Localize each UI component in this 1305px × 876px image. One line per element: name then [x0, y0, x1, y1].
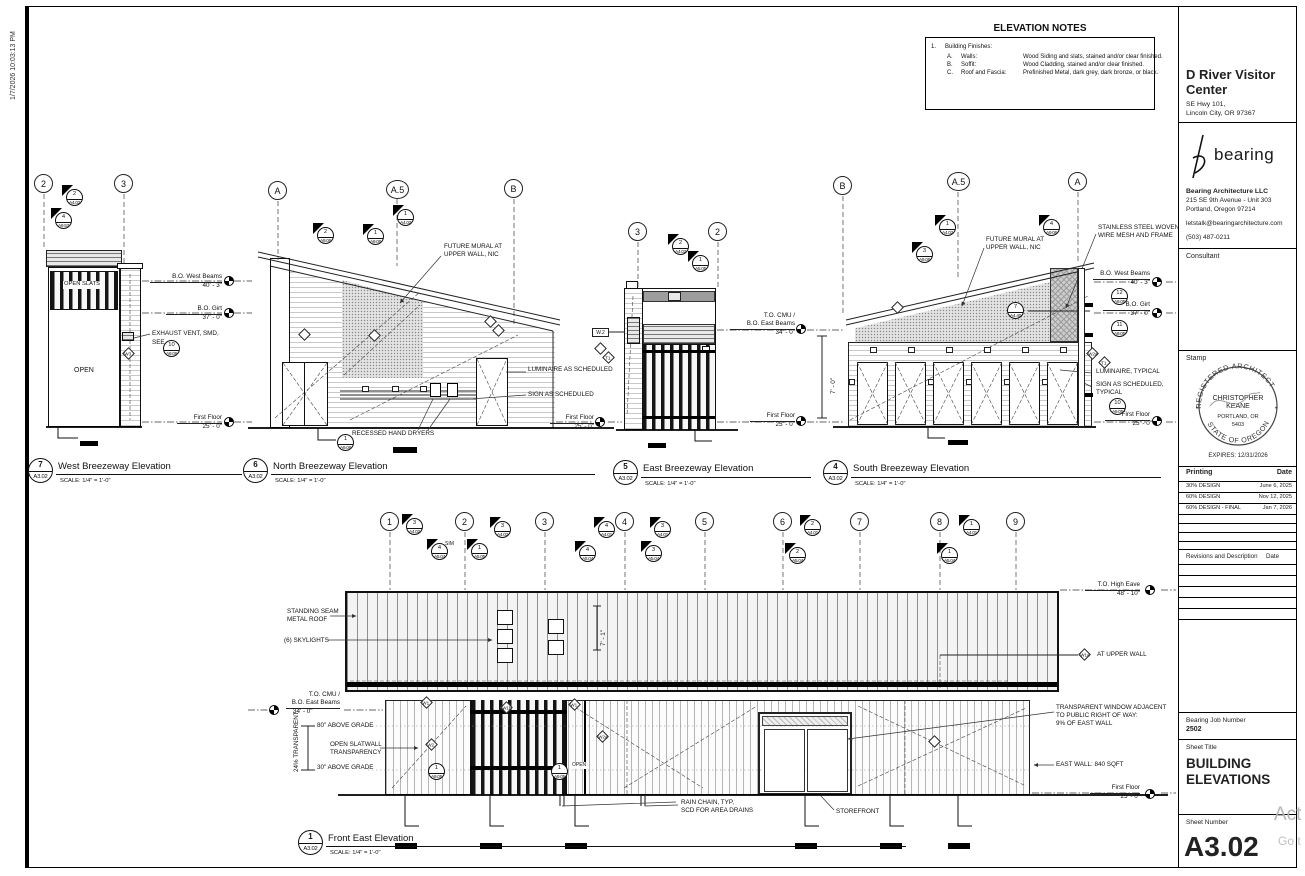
fixture-box — [420, 386, 427, 392]
marker-number: 1 — [552, 764, 567, 774]
storefront-door — [764, 729, 805, 792]
printing-row-date: Jan 7, 2026 — [1246, 505, 1292, 511]
mural-note: FUTURE MURAL AT — [444, 243, 502, 251]
luminaire-box — [1004, 379, 1010, 385]
level-name: T.O. CMU / — [745, 312, 795, 320]
view-number: 7 — [29, 459, 52, 472]
skylight — [548, 640, 564, 655]
title-underline — [851, 477, 1161, 478]
marker-number: 11 — [1112, 321, 1127, 331]
storefront-door — [807, 729, 848, 792]
note-row-finish: Prefinished Metal, dark grey, dark bronz… — [1023, 70, 1158, 78]
detail-callout: 1A9.05 — [551, 763, 568, 780]
footing-mark — [948, 440, 968, 445]
marker-sheet: A4.40 — [1008, 313, 1023, 320]
marker-number: 10 — [1110, 399, 1125, 409]
dimension-label: 7' - 0" — [830, 378, 838, 394]
north-door-right — [476, 358, 508, 426]
sign-note: SIGN AS SCHEDULED, — [1096, 381, 1164, 389]
roof-fascia — [347, 682, 1057, 687]
marker-number: 1 — [942, 548, 957, 558]
open-label: OPEN — [74, 366, 94, 375]
grid-bubble: A.5 — [386, 180, 409, 199]
west-cmu-column — [120, 268, 141, 427]
section-marker: 4A9.06 — [1043, 219, 1060, 236]
window-note: 9% OF EAST WALL — [1056, 720, 1112, 728]
marker-sheet: A9.06 — [368, 239, 383, 246]
level-datum-icon — [224, 276, 234, 286]
marker-number: 10 — [164, 341, 179, 351]
sheet-number-label: Sheet Number — [1186, 819, 1228, 826]
project-name: D River Visitor Center — [1186, 68, 1286, 98]
architect-stamp: REGISTERED ARCHITECT STATE OF OREGON CHR… — [1190, 362, 1286, 454]
view-number: 1 — [299, 831, 322, 844]
open-slats-label: OPEN SLATS — [63, 281, 101, 289]
view-number: 5 — [614, 461, 637, 474]
luminaire-box — [966, 379, 972, 385]
west-column-cap — [117, 263, 143, 269]
view-number: 6 — [244, 459, 267, 472]
title-underline — [56, 474, 242, 475]
level-datum-icon — [796, 416, 806, 426]
grid-bubble: 9 — [1006, 512, 1025, 531]
footing-mark — [948, 843, 970, 849]
tag-label: W2a — [1088, 350, 1095, 359]
section-marker: 4A5.04 — [579, 545, 596, 562]
sheet-number: A3.02 — [1184, 831, 1259, 863]
level-elevation: 34' - 0" — [758, 329, 795, 337]
east-wall-note: EAST WALL: 840 SQFT — [1056, 761, 1124, 769]
south-door — [1009, 362, 1040, 425]
south-door — [971, 362, 1002, 425]
table-rule — [1179, 514, 1297, 515]
marker-number: 1 — [940, 220, 955, 230]
level-elevation: 25' - 0" — [560, 423, 594, 431]
south-door — [1047, 362, 1078, 425]
view-scale: SCALE: 1/4" = 1'-0" — [855, 481, 906, 487]
skylight — [497, 610, 513, 625]
level-elevation: 37' - 0" — [185, 314, 222, 322]
grid-bubble: 1 — [380, 512, 399, 531]
plot-timestamp: 1/7/2026 10:03:13 PM — [9, 31, 18, 100]
marker-number: 2 — [67, 190, 82, 200]
tag-label: T1 — [1100, 359, 1107, 368]
table-rule — [1179, 541, 1297, 542]
view-title-bubble: 5A3.02 — [613, 460, 638, 485]
door-mullion — [304, 362, 305, 426]
stamp-name: KEANE — [1226, 403, 1250, 410]
storefront-note: STOREFRONT — [836, 808, 879, 816]
marker-sheet: A9.06 — [338, 445, 353, 452]
luminaire-box — [849, 379, 855, 385]
marker-number: 7 — [1008, 303, 1023, 313]
printing-row-label: 60% DESIGN — [1186, 494, 1220, 500]
east-parapet-notch — [626, 281, 638, 289]
note-row-finish: Wood Siding and slats, stained and/or cl… — [1023, 54, 1163, 62]
level-elevation: 40' - 3" — [1113, 279, 1150, 287]
view-scale: SCALE: 1/4" = 1'-0" — [645, 481, 696, 487]
section-marker: 4A5.04 — [431, 543, 448, 560]
section-marker: 3A4.02 — [406, 518, 423, 535]
grid-bubble: 3 — [535, 512, 554, 531]
beam-pocket — [908, 347, 915, 353]
west-roof-band — [46, 250, 122, 267]
section-marker: 1A4.02 — [939, 219, 956, 236]
note-row-element: Roof and Fascia: — [961, 70, 1006, 78]
grid-bubble: B — [833, 176, 852, 195]
grid-bubble: 5 — [695, 512, 714, 531]
note-row-element: Walls: — [961, 54, 977, 62]
grid-bubble: 2 — [34, 174, 53, 193]
section-marker: 1A4.02 — [397, 209, 414, 226]
project-address: Lincoln City, OR 97367 — [1186, 110, 1255, 117]
firm-address: Portland, Oregon 97214 — [1186, 206, 1255, 213]
marker-sheet: A5.04 — [580, 556, 595, 563]
marker-sheet: A9.06 — [164, 351, 179, 358]
section-marker: 2A4.02 — [672, 238, 689, 255]
titleblock-rule — [1179, 350, 1297, 351]
drawing-sheet: 1/7/2026 10:03:13 PM ELEVATION NOTES 1. … — [0, 0, 1305, 876]
level-datum-icon — [1152, 308, 1162, 318]
printing-row-label: 60% DESIGN - FINAL — [1186, 505, 1241, 511]
firm-email: letstalk@bearingarchitecture.com — [1186, 220, 1283, 227]
section-marker: 2A5.04 — [789, 547, 806, 564]
view-number: 4 — [824, 461, 847, 474]
stamp-number: 5403 — [1232, 422, 1244, 428]
grid-bubble: A — [268, 181, 287, 200]
sheet-title: ELEVATIONS — [1186, 772, 1270, 787]
beam-pocket — [1060, 347, 1067, 353]
marker-sheet: A9.06 — [318, 238, 333, 245]
note-row-letter: C. — [947, 70, 953, 78]
grid-bubble: 2 — [708, 222, 727, 241]
consultant-label: Consultant — [1186, 253, 1219, 260]
marker-sheet: A5.04 — [942, 558, 957, 565]
marker-sheet: A4.02 — [495, 532, 510, 539]
marker-number: 1 — [368, 229, 383, 239]
east-vent — [668, 292, 681, 301]
section-marker: 4A9.53 — [55, 212, 72, 229]
marker-sheet: A9.05 — [429, 774, 444, 781]
footing-mark — [393, 447, 417, 453]
west-slat-band — [50, 271, 118, 310]
tag-label: W1 — [570, 701, 577, 710]
hand-dryer — [447, 383, 458, 397]
detail-callout: 7A4.40 — [1007, 302, 1024, 319]
marker-sheet: A4.02 — [940, 230, 955, 237]
view-sheet: A3.02 — [29, 472, 52, 483]
marker-sheet: A5.04 — [646, 556, 661, 563]
marker-number: 3 — [495, 522, 510, 532]
detail-callout: 10A9.05 — [1109, 398, 1126, 415]
screen-rail — [470, 710, 567, 714]
project-address: SE Hwy 101, — [1186, 101, 1225, 108]
mesh-note: WIRE MESH AND FRAME — [1098, 232, 1173, 240]
titleblock-rule — [1179, 739, 1297, 740]
marker-sheet: A9.05 — [1112, 331, 1127, 338]
marker-sheet: A4.01 — [805, 530, 820, 537]
bearing-logo-icon — [1186, 132, 1212, 182]
activation-watermark: Go t — [1278, 834, 1301, 848]
detail-callout: 10A9.06 — [163, 340, 180, 357]
svg-text:•: • — [1275, 406, 1277, 412]
marker-number: 2 — [673, 239, 688, 249]
section-marker: 2A4.01 — [804, 519, 821, 536]
section-marker: 3A4.02 — [494, 521, 511, 538]
beam-pocket — [946, 347, 953, 353]
marker-number: 2 — [805, 520, 820, 530]
view-title-bubble: 4A3.02 — [823, 460, 848, 485]
printing-row-label: 30% DESIGN — [1186, 483, 1220, 489]
slatwall-note: OPEN SLATWALL — [330, 741, 378, 749]
level-elevation: 37' - 0" — [1113, 310, 1150, 318]
window-note: TRANSPARENT WINDOW ADJACENT — [1056, 704, 1166, 712]
firm-phone: (503) 487-0211 — [1186, 234, 1230, 241]
level-datum-icon — [224, 308, 234, 318]
marker-sheet: A4.01 — [655, 532, 670, 539]
marker-number: 4 — [580, 546, 595, 556]
sign-note: SIGN AS SCHEDULED — [528, 391, 594, 399]
section-marker: 3A4.01 — [654, 521, 671, 538]
level-datum-icon — [1152, 277, 1162, 287]
view-scale: SCALE: 1/4" = 1'-0" — [275, 478, 326, 484]
window-note: TO PUBLIC RIGHT OF WAY: — [1056, 712, 1138, 720]
footing-mark — [648, 443, 666, 448]
marker-number: 3 — [655, 522, 670, 532]
marker-number: 2 — [318, 228, 333, 238]
beam-pocket — [870, 347, 877, 353]
tag-label: W1b — [502, 704, 509, 713]
grade-note: 30" ABOVE GRADE — [317, 764, 373, 772]
mural-note: FUTURE MURAL AT — [986, 236, 1044, 244]
skylight — [497, 648, 513, 663]
marker-number: 3 — [407, 519, 422, 529]
view-title: Front East Elevation — [328, 833, 414, 844]
marker-sheet: A9.05 — [1112, 299, 1127, 306]
marker-number: 1 — [693, 256, 708, 266]
section-marker: 3A9.06 — [916, 246, 933, 263]
marker-sheet: A4.01 — [599, 532, 614, 539]
roof-note: METAL ROOF — [287, 616, 327, 624]
dimension-label: 7' - 1" — [600, 630, 608, 646]
table-rule — [1179, 564, 1297, 565]
title-underline — [271, 474, 595, 475]
grid-bubble: 8 — [930, 512, 949, 531]
fixture-box — [392, 386, 399, 392]
section-marker: 2A9.06 — [317, 227, 334, 244]
level-datum-icon — [1152, 416, 1162, 426]
marker-sheet: A4.02 — [673, 249, 688, 256]
marker-sheet: A9.05 — [1110, 409, 1125, 416]
section-marker: 3A5.04 — [645, 545, 662, 562]
transparency-note: 24% TRANSPARENT — [293, 711, 301, 772]
tag-label: T1 — [604, 354, 611, 363]
table-rule — [1179, 503, 1297, 504]
level-elevation: 25' - 0" — [1115, 420, 1152, 428]
level-elevation: 48' - 10" — [1095, 590, 1140, 598]
grade-note: 80" ABOVE GRADE — [317, 722, 373, 730]
stamp-label: Stamp — [1186, 355, 1206, 362]
marker-sheet: A9.06 — [917, 257, 932, 264]
table-rule — [1179, 619, 1297, 620]
sheet-left-edge — [25, 6, 29, 868]
marker-sheet: A5.04 — [790, 558, 805, 565]
level-datum-icon — [1145, 789, 1155, 799]
grid-bubble: 2 — [455, 512, 474, 531]
activation-watermark: Act — [1274, 804, 1301, 826]
view-sheet: A3.02 — [244, 472, 267, 483]
marker-number: 1 — [429, 764, 444, 774]
luminaire-note: LUMINAIRE AS SCHEDULED — [528, 366, 613, 374]
elevation-notes-title: ELEVATION NOTES — [925, 22, 1155, 35]
svg-text:•: • — [1196, 406, 1198, 412]
sign-note: TYPICAL — [1096, 389, 1122, 397]
slatwall-note: TRANSPARENCY — [330, 749, 378, 757]
north-door-left — [282, 362, 328, 426]
mural-note: UPPER WALL, NIC — [444, 251, 499, 259]
marker-sheet: A4.02 — [398, 220, 413, 227]
grid-bubble: A — [1068, 172, 1087, 191]
exhaust-note: EXHAUST VENT, SMD, — [152, 330, 219, 338]
table-rule — [1179, 523, 1297, 524]
title-underline — [641, 477, 811, 478]
level-elevation: 25' - 0" — [185, 423, 222, 431]
printing-row-date: Nov 12, 2025 — [1246, 494, 1292, 500]
grid-bubble: 3 — [628, 222, 647, 241]
connector-mark — [1085, 303, 1093, 307]
view-scale: SCALE: 1/4" = 1'-0" — [330, 850, 381, 856]
marker-number: 1 — [398, 210, 413, 220]
level-name: T.O. CMU / — [298, 691, 340, 699]
grid-bubble: 7 — [850, 512, 869, 531]
footing-mark — [80, 441, 98, 446]
open-label: OPEN — [571, 762, 587, 769]
view-title-bubble: 1A3.02 — [298, 830, 323, 855]
marker-sheet: A4.01 — [964, 530, 979, 537]
note-item-number: 1. — [931, 44, 936, 52]
table-rule — [1179, 586, 1297, 587]
detail-callout: 11A9.05 — [1111, 320, 1128, 337]
upper-wall-note: AT UPPER WALL — [1097, 651, 1147, 659]
detail-callout: 1A9.05 — [428, 763, 445, 780]
view-title: North Breezeway Elevation — [273, 461, 388, 472]
title-underline — [326, 846, 906, 847]
beam-pocket — [1022, 347, 1029, 353]
front-slat-screen — [470, 700, 567, 795]
section-marker: 1A5.05 — [692, 255, 709, 272]
luminaire-note: LUMINAIRE, TYPICAL — [1096, 368, 1160, 376]
sheet-title: BUILDING — [1186, 756, 1251, 771]
revisions-date-header: Date — [1266, 553, 1279, 560]
firm-address: 215 SE 9th Avenue - Unit 303 — [1186, 197, 1272, 204]
marker-number: 2 — [790, 548, 805, 558]
table-rule — [1179, 575, 1297, 576]
titleblock-rule — [1179, 712, 1297, 713]
view-scale: SCALE: 1/4" = 1'-0" — [60, 478, 111, 484]
level-elevation: 25' - 0" — [1100, 793, 1140, 801]
rain-chain-note: RAIN CHAIN, TYP, — [681, 799, 734, 807]
skylight — [497, 629, 513, 644]
marker-number: 12 — [1112, 289, 1127, 299]
note-row-finish: Wood Cladding, stained and/or clear fini… — [1023, 62, 1144, 70]
view-title: East Breezeway Elevation — [643, 463, 753, 474]
printing-date-header: Date — [1246, 469, 1292, 476]
hand-dryer — [430, 383, 441, 397]
marker-sheet: A9.06 — [1044, 230, 1059, 237]
firm-name: Bearing Architecture LLC — [1186, 188, 1268, 195]
south-end-post — [1078, 268, 1085, 427]
east-cmu-column — [625, 289, 643, 429]
marker-sheet: A5.05 — [472, 554, 487, 561]
grid-bubble: 4 — [615, 512, 634, 531]
marker-number: 3 — [646, 546, 661, 556]
tag-label: W2 — [427, 741, 434, 750]
table-rule — [1179, 481, 1297, 482]
gate-rail — [643, 416, 715, 419]
south-door — [857, 362, 888, 425]
view-title: South Breezeway Elevation — [853, 463, 969, 474]
note-row-letter: A. — [947, 54, 953, 62]
luminaire-box — [1042, 379, 1048, 385]
stamp-expires: EXPIRES: 12/31/2026 — [1191, 453, 1285, 459]
sheet-title-label: Sheet Title — [1186, 744, 1217, 751]
east-cladding-band — [643, 324, 715, 344]
tag-label: W2a — [598, 733, 605, 742]
tag-label: W1a — [1080, 651, 1087, 660]
marker-number: 1 — [964, 520, 979, 530]
job-number-label: Bearing Job Number — [1186, 717, 1246, 724]
tag-label: W3 — [124, 350, 131, 359]
table-rule — [1179, 608, 1297, 609]
tag-label: W1 — [422, 699, 429, 708]
stamp-city: PORTLAND, OR — [1217, 414, 1258, 420]
section-marker: 1A4.01 — [963, 519, 980, 536]
level-datum-icon — [1145, 585, 1155, 595]
marker-sheet: A4.02 — [407, 529, 422, 536]
luminaire-box — [928, 379, 934, 385]
marker-sheet: A9.53 — [56, 223, 71, 230]
table-rule — [1179, 597, 1297, 598]
firm-logo-text: bearing — [1214, 145, 1274, 165]
mural-note: UPPER WALL, NIC — [986, 244, 1041, 252]
section-marker: 1A9.06 — [367, 228, 384, 245]
east-louver — [627, 317, 640, 344]
gate-rail — [643, 350, 715, 353]
grid-bubble: 6 — [773, 512, 792, 531]
skylight-note: (6) SKYLIGHTS — [284, 637, 329, 645]
marker-sheet: A5.05 — [693, 266, 708, 273]
marker-number: 4 — [432, 544, 447, 554]
mesh-note: STAINLESS STEEL WOVEN — [1098, 224, 1179, 232]
view-sheet: A3.02 — [824, 474, 847, 485]
view-title-bubble: 6A3.02 — [243, 458, 268, 483]
printing-header: Printing — [1186, 469, 1212, 476]
marker-number: 1 — [338, 435, 353, 445]
level-datum-icon — [595, 417, 605, 427]
west-exhaust-vent — [122, 332, 134, 341]
level-elevation: 25' - 0" — [758, 421, 795, 429]
beam-pocket — [984, 347, 991, 353]
section-marker: 1A5.05 — [471, 543, 488, 560]
skylight — [548, 619, 564, 634]
grid-bubble: 3 — [114, 174, 133, 193]
table-rule — [1179, 492, 1297, 493]
note-row-letter: B. — [947, 62, 953, 70]
section-marker: 2A4.02 — [66, 189, 83, 206]
titleblock-rule — [1179, 549, 1297, 550]
storefront-transom — [762, 716, 848, 726]
detail-callout: 1A9.06 — [337, 434, 354, 451]
